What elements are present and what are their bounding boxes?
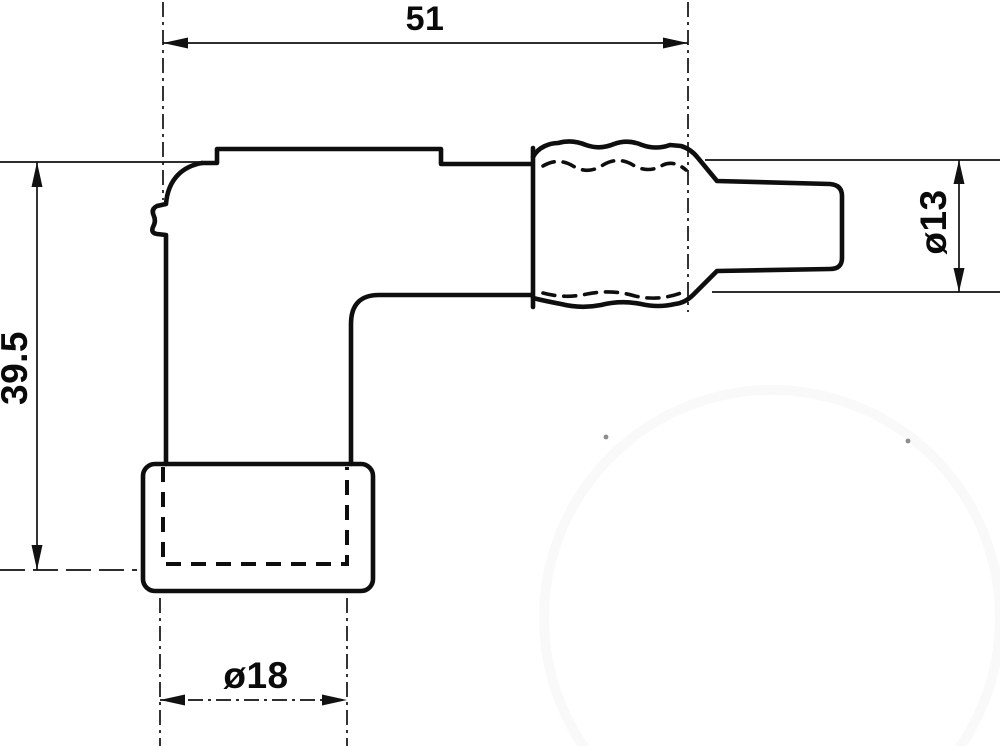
part-outline — [143, 141, 842, 591]
boot-and-terminal-outline — [533, 141, 842, 306]
dim-label-top-width: 51 — [406, 0, 445, 38]
scan-artifacts — [544, 390, 1000, 746]
cap-top-edge — [202, 149, 531, 164]
drawing-sheet: 51 39.5 ø13 ø18 — [0, 0, 1000, 746]
arrowhead-right — [663, 38, 688, 49]
arrowhead-right — [322, 695, 347, 706]
hidden-detail — [163, 161, 686, 565]
arrowhead-top — [32, 162, 43, 187]
dim-label-left-height: 39.5 — [0, 331, 35, 405]
arrowhead-top — [954, 160, 965, 184]
dimension-left-height: 39.5 — [0, 162, 214, 570]
cap-left-edge-and-rib — [152, 163, 202, 464]
watermark-ghost-circle — [544, 390, 1000, 746]
terminal-interior-bottom-dashed — [543, 291, 686, 298]
arrowhead-left — [160, 695, 185, 706]
terminal-interior-top-dashed — [543, 161, 686, 171]
inner-elbow-edge — [351, 295, 531, 464]
dim-label-terminal-diameter: ø13 — [913, 189, 954, 254]
scan-artifact-dot — [906, 439, 911, 444]
scan-artifact-dot — [604, 435, 609, 440]
arrowhead-left — [163, 38, 188, 49]
plug-cavity-dashed — [163, 467, 347, 564]
arrowhead-bottom — [954, 268, 965, 292]
arrowhead-bottom — [32, 545, 43, 570]
dimension-top-width: 51 — [163, 0, 688, 312]
dim-label-boot-diameter: ø18 — [223, 655, 288, 696]
dimension-boot-diameter: ø18 — [160, 598, 347, 746]
drawing-canvas: 51 39.5 ø13 ø18 — [0, 0, 1000, 746]
plug-boot-rect — [143, 464, 373, 591]
